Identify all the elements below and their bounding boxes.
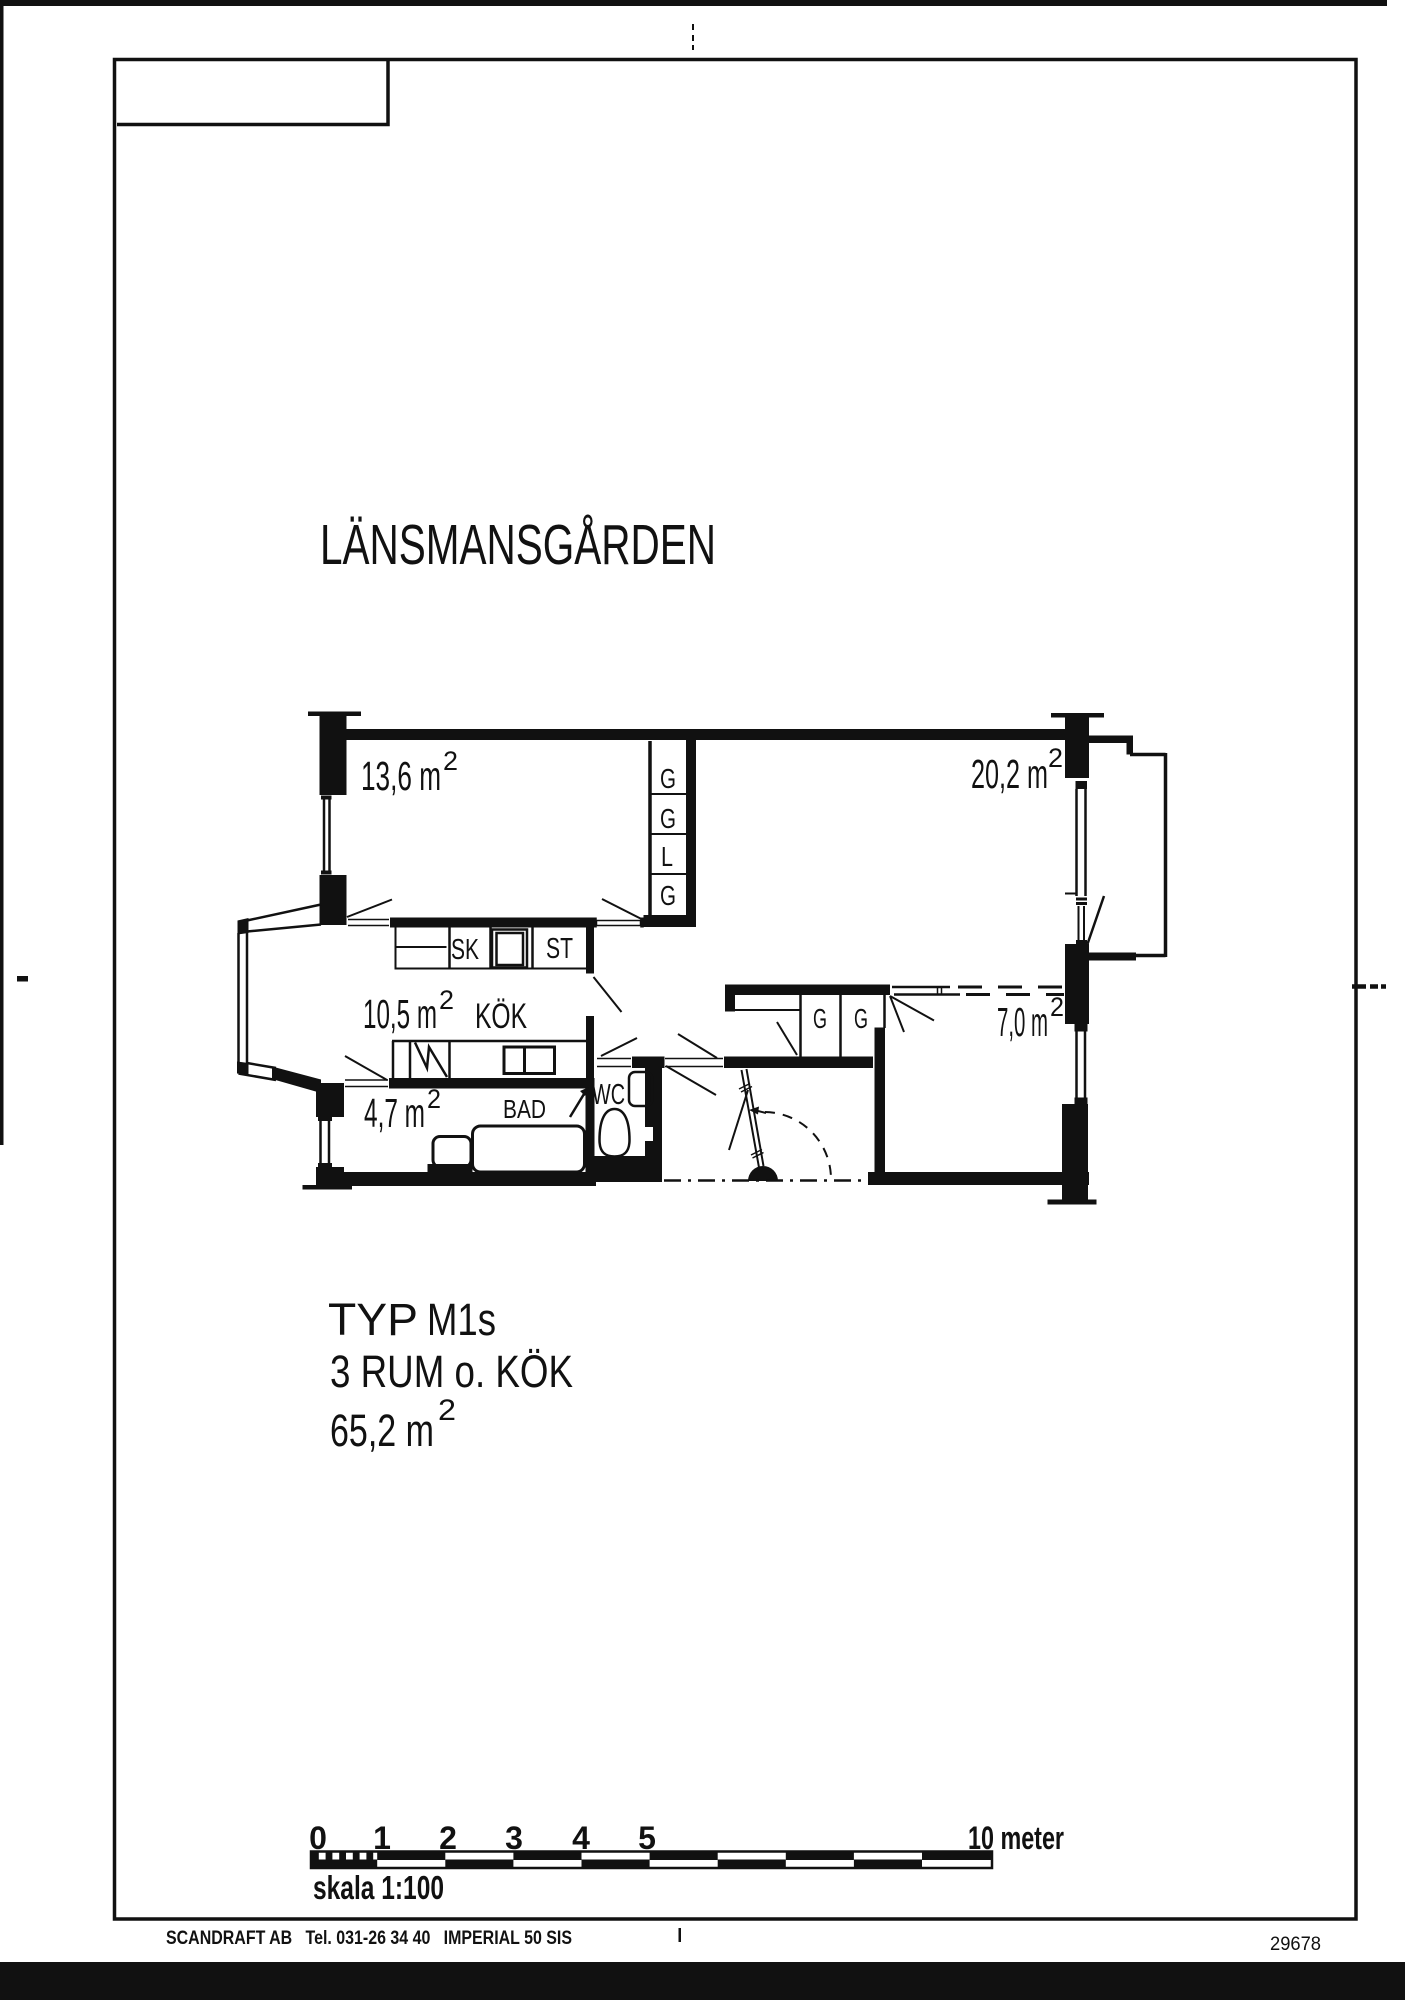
svg-text:SK: SK [451, 934, 479, 966]
svg-text:29678: 29678 [1270, 1934, 1321, 1955]
svg-text:LÄNSMANSGÅRDEN: LÄNSMANSGÅRDEN [320, 513, 716, 577]
svg-text:2: 2 [1048, 743, 1063, 773]
svg-text:skala 1:100: skala 1:100 [313, 1869, 444, 1906]
svg-text:SCANDRAFT AB Tel. 031-26 34: SCANDRAFT AB Tel. 031-26 34 40 IMPERIAL … [166, 1928, 572, 1949]
svg-text:G: G [660, 763, 676, 794]
svg-text:7,0 m: 7,0 m [997, 999, 1048, 1045]
svg-text:G: G [854, 1003, 868, 1034]
svg-text:WC: WC [592, 1079, 625, 1111]
svg-text:2: 2 [443, 746, 458, 776]
svg-text:3 RUM o. KÖK: 3 RUM o. KÖK [330, 1346, 573, 1397]
svg-text:2: 2 [438, 1394, 456, 1427]
svg-text:L: L [661, 841, 673, 872]
svg-text:G: G [813, 1003, 827, 1034]
svg-text:10,5 m: 10,5 m [363, 991, 437, 1037]
svg-text:G: G [660, 880, 676, 911]
svg-text:G: G [660, 803, 676, 834]
svg-text:65,2 m: 65,2 m [330, 1405, 434, 1456]
svg-text:2: 2 [1050, 992, 1064, 1022]
svg-text:4,7 m: 4,7 m [364, 1090, 425, 1136]
svg-text:TYP: TYP [328, 1294, 418, 1345]
svg-text:BAD: BAD [503, 1094, 546, 1124]
svg-text:ST: ST [546, 933, 573, 965]
svg-text:2: 2 [427, 1084, 441, 1114]
svg-text:KÖK: KÖK [475, 997, 527, 1036]
svg-text:20,2 m: 20,2 m [971, 751, 1048, 797]
svg-text:2: 2 [439, 985, 454, 1015]
svg-text:13,6 m: 13,6 m [361, 753, 441, 799]
svg-text:M1s: M1s [427, 1294, 496, 1345]
